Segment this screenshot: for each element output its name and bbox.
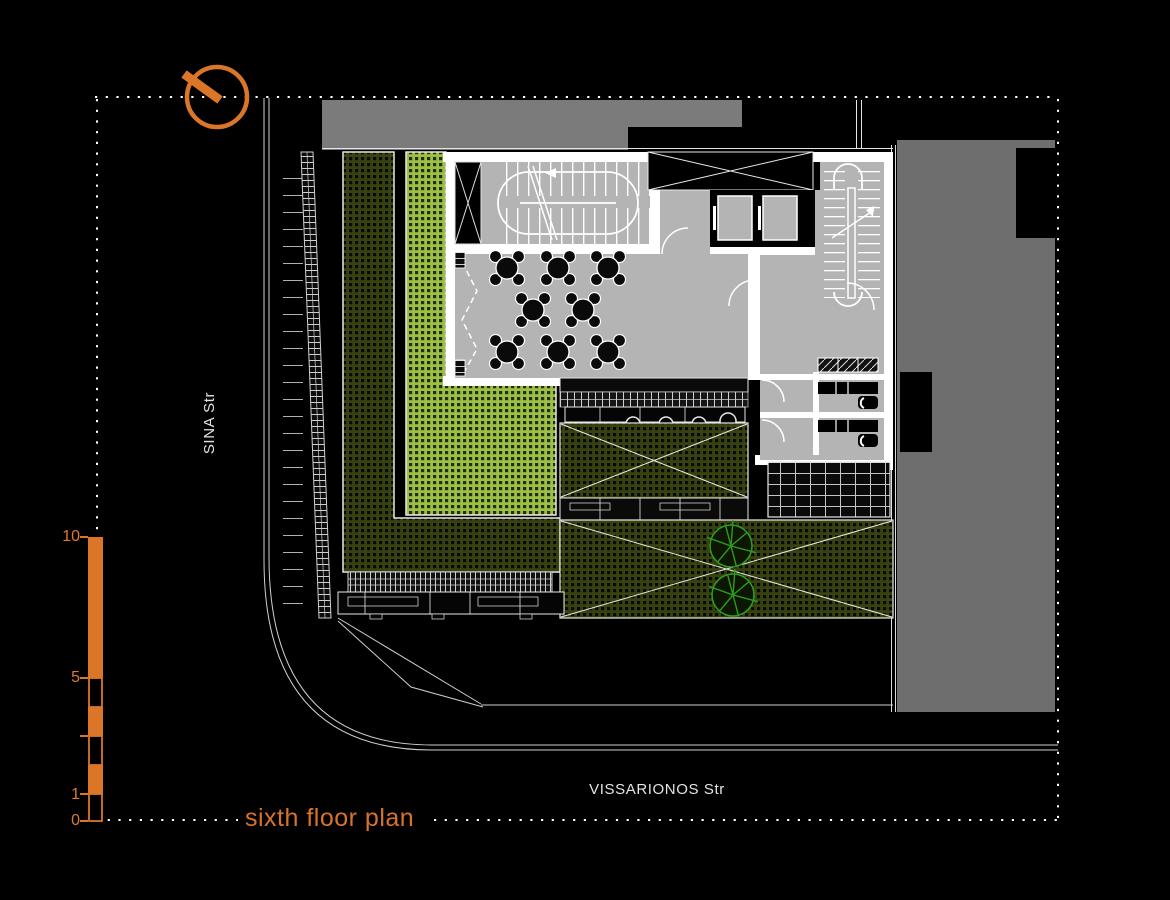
scale-label-5: 5 [54,669,80,687]
void-skylight [648,152,813,190]
scale-label-0: 0 [54,812,80,830]
roof-terrace-upper [560,423,748,498]
elevator-bank [710,190,815,255]
main-staircase [470,162,650,244]
roof-terrace-lower [560,520,893,618]
floor-plan-drawing [0,0,1170,900]
shaft-x-box [455,162,481,244]
pergola-grid [768,462,890,517]
street-label-sina: SINA Str [201,363,221,483]
planter-bench-row [560,498,748,520]
scale-bar [80,537,103,821]
secondary-staircase [820,162,884,310]
scale-label-1: 1 [54,786,80,804]
scale-label-10: 10 [54,528,80,546]
south-west-planters [338,572,564,619]
street-label-vissarionos: VISSARIONOS Str [557,781,757,798]
facade-louver-strip [283,152,331,618]
floor-plan-canvas: SINA Str VISSARIONOS Str sixth floor pla… [0,0,1170,900]
drawing-title: sixth floor plan [245,804,414,833]
